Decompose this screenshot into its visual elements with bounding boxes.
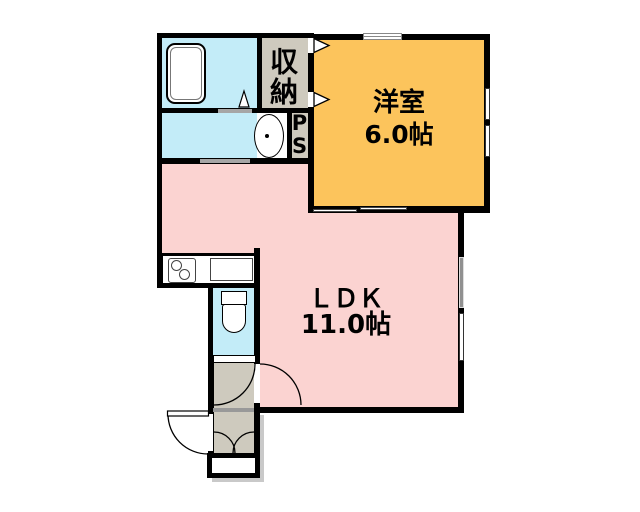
wall-top-left-block — [157, 33, 314, 38]
porch — [207, 453, 260, 478]
bathtub-inner-line — [170, 47, 202, 100]
genkan-step-line — [213, 408, 254, 412]
western-top-window — [363, 33, 402, 40]
western-right-window-2 — [485, 125, 490, 157]
storage-label: 収納 — [268, 44, 302, 110]
ldk-right-window — [459, 313, 464, 361]
ldk-label: ＬＤＫ 11.0帖 — [281, 285, 411, 339]
bathtub — [166, 43, 206, 104]
pipe-space-p: P — [290, 112, 309, 135]
stove-burner-2 — [179, 269, 190, 280]
western-room-name: 洋室 — [314, 88, 484, 119]
ldk-size: 11.0帖 — [281, 312, 411, 339]
washroom-floor — [162, 113, 257, 158]
entrance-door-arc — [168, 414, 208, 454]
floor-plan: 洋室 6.0帖 ＬＤＫ 11.0帖 収納 P S — [0, 0, 640, 512]
washbasin-oval — [254, 114, 284, 158]
sliding-door-panel-left — [313, 209, 357, 213]
western-top-window-midline — [364, 36, 401, 37]
wall-western-right — [484, 34, 490, 213]
shadow-porch-bottom — [212, 478, 264, 482]
ldk-name: ＬＤＫ — [281, 285, 411, 312]
shadow-strip-right — [260, 415, 264, 481]
entrance-genkan-floor — [213, 412, 254, 453]
ldk-door-gap — [254, 364, 260, 403]
washroom-door-threshold — [200, 159, 250, 163]
ldk-right-window-shaded — [459, 257, 464, 308]
western-room-label: 洋室 6.0帖 — [314, 88, 484, 150]
western-room-size: 6.0帖 — [314, 119, 484, 150]
wall-ldk-bottom — [254, 407, 464, 413]
toilet-bowl — [222, 304, 246, 333]
entrance-door-leaf — [168, 411, 209, 416]
toilet-door-gap — [214, 356, 255, 362]
hall-upper-floor — [213, 363, 254, 408]
washbasin-drain-dot — [265, 134, 269, 138]
western-right-window-1 — [485, 88, 490, 120]
sliding-door-panel-right — [360, 207, 407, 211]
closet-door-gap-1 — [308, 38, 314, 53]
wall-counter-bottom-outer — [157, 283, 260, 288]
pipe-space-label: P S — [290, 112, 309, 158]
pipe-space-s: S — [290, 135, 309, 158]
kitchen-sink — [210, 258, 253, 281]
bathroom-door-threshold — [218, 109, 252, 113]
entrance-door-gap — [208, 414, 213, 451]
toilet-tank — [221, 291, 247, 305]
